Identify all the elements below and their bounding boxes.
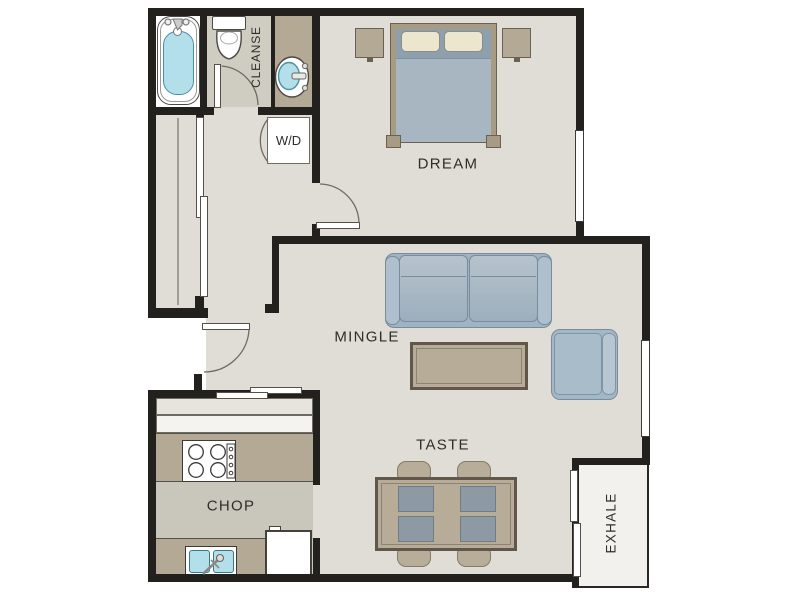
bed-pillow-right [444,31,483,52]
sofa-seam-left [401,276,466,277]
wall-top [148,8,584,16]
placemat-bottom-right [460,516,496,542]
wall-bedroom-right-upper [576,8,584,130]
wall-bath-bottom-right [258,107,320,115]
room-label-bathroom: CLEANSE [249,26,263,88]
entry-door-panel [202,323,250,330]
wall-corridor-right [272,236,279,306]
wall-bottom [148,574,578,582]
dining-chair-bottom-left [397,549,431,567]
bed-foot-left [386,135,401,148]
wall-closet-stub-bottom [195,296,204,318]
kitchen-cabinet-lower [156,415,313,433]
placemat-top-left [398,486,434,512]
room-label-laundry: W/D [276,133,301,148]
placemat-top-right [460,486,496,512]
wall-kitchen-right-lower [313,538,320,582]
room-label-dining: TASTE [416,437,470,454]
exterior-mask-top-right [584,0,800,238]
bathroom-door-panel [214,64,221,108]
coffee-table-inner-line [416,348,522,384]
nightstand-left-icon [355,28,384,58]
wall-bedroom-left [312,16,320,183]
kitchen-sink-basin-right [213,550,234,573]
room-label-living: MINGLE [334,329,399,346]
balcony-slider-a [570,470,578,522]
bedroom-window [575,130,584,222]
wall-sink-divider [271,16,275,107]
closet-divider-line [177,118,179,305]
wall-left-upper [148,8,156,318]
refrigerator-icon [265,530,312,577]
living-window [641,340,650,437]
sofa-seam-right [471,276,536,277]
bathtub-drain [173,27,182,36]
closet-slider-b [200,196,208,297]
wall-entry-stub [194,374,202,398]
armchair-back [602,333,616,395]
wall-step-out [576,236,650,244]
bedroom-door-panel [316,222,360,229]
toilet-tank [212,16,246,30]
nightstand-right-knob [514,58,520,62]
dining-chair-bottom-right [457,549,491,567]
room-label-kitchen: CHOP [207,498,256,515]
bed-foot-right [486,135,501,148]
wall-balcony-top [572,458,650,465]
sofa-cushion-right [469,255,538,322]
wall-corridor-foot [265,304,279,313]
wall-tub-divider [200,16,207,107]
wall-left-lower [148,390,156,582]
sofa-armrest-left [385,256,400,325]
kitchen-sink-basin-left [189,550,210,573]
wall-living-right-upper [642,236,650,340]
room-label-bedroom: DREAM [418,156,479,173]
kitchen-cabinet-upper [156,398,313,415]
floor-plan: W/D [0,0,800,600]
room-label-balcony: EXHALE [604,492,619,553]
kitchen-pocket-door-b [216,392,268,399]
wall-kitchen-right-upper [313,390,320,485]
refrigerator-handle [269,526,281,531]
wall-bedroom-right-lower [576,222,584,237]
nightstand-left-knob [367,58,373,62]
sink-wall-floor [275,16,312,107]
sofa-cushion-left [399,255,468,322]
nightstand-right-icon [502,28,531,58]
armchair-seat [554,333,602,395]
bed-mattress [396,58,491,142]
bed-pillow-left [401,31,440,52]
wall-bath-bottom-left [148,107,214,115]
placemat-bottom-left [398,516,434,542]
wall-bedroom-living-divider [272,236,584,244]
stove-icon [182,440,236,482]
sofa-armrest-right [537,256,552,325]
washer-dryer-box: W/D [267,117,310,164]
bathtub-water [163,31,194,95]
balcony-slider-b [573,523,581,577]
